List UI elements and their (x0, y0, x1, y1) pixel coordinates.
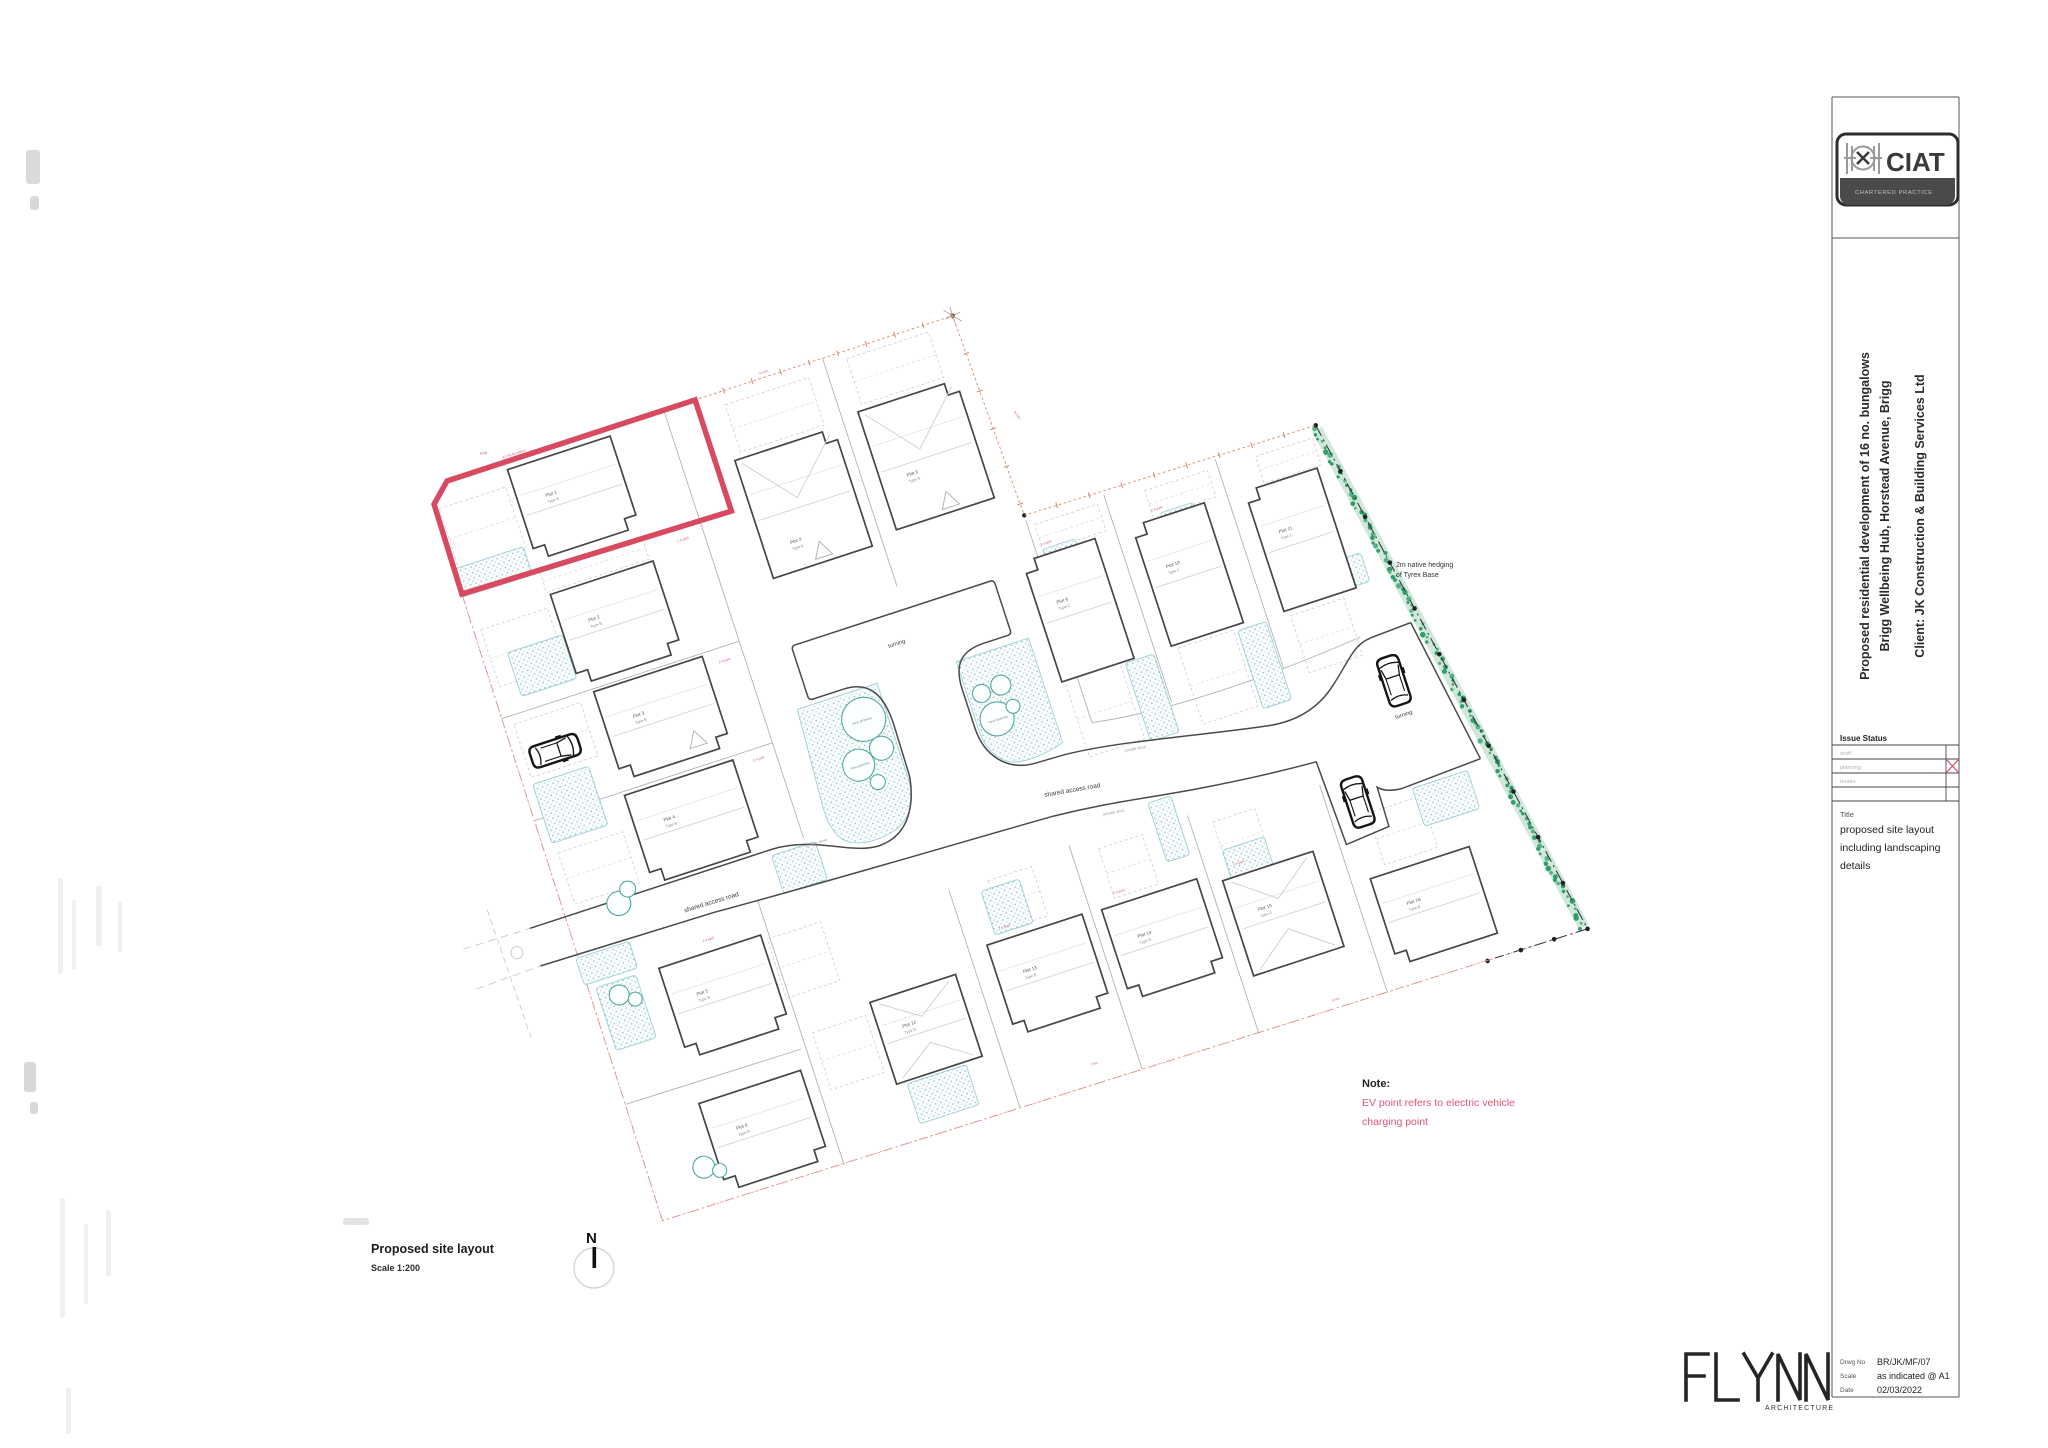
svg-text:draft: draft (1840, 751, 1851, 757)
svg-text:EV point refers to electric ve: EV point refers to electric vehicle (1362, 1097, 1515, 1109)
svg-text:proposed site layout: proposed site layout (1840, 824, 1934, 836)
svg-text:CIAT: CIAT (1886, 147, 1945, 177)
svg-text:Brigg Wellbeing Hub, Horstead: Brigg Wellbeing Hub, Horstead Avenue, Br… (1878, 380, 1892, 651)
svg-text:N: N (586, 1230, 597, 1247)
svg-text:CHARTERED PRACTICE: CHARTERED PRACTICE (1855, 190, 1933, 196)
svg-text:Drwg No: Drwg No (1840, 1359, 1866, 1366)
svg-text:Client: JK Construction & Bui: Client: JK Construction & Building Servi… (1913, 374, 1927, 657)
svg-text:BR/JK/MF/07: BR/JK/MF/07 (1877, 1357, 1931, 1367)
svg-text:Proposed site layout: Proposed site layout (371, 1242, 495, 1256)
svg-text:as indicated @ A1: as indicated @ A1 (1877, 1371, 1950, 1381)
svg-text:of Tyrex Base: of Tyrex Base (1396, 572, 1439, 579)
svg-text:Scale 1:200: Scale 1:200 (371, 1263, 420, 1273)
svg-text:planning: planning (1840, 765, 1861, 771)
svg-text:tender: tender (1840, 779, 1856, 785)
svg-text:including landscaping: including landscaping (1840, 842, 1941, 854)
svg-text:Proposed residential developme: Proposed residential development of 16 n… (1858, 352, 1872, 680)
svg-text:Scale: Scale (1840, 1373, 1857, 1380)
svg-text:charging point: charging point (1362, 1116, 1428, 1128)
svg-text:Title: Title (1840, 810, 1854, 819)
svg-text:Date: Date (1840, 1387, 1854, 1394)
svg-text:ARCHITECTURE: ARCHITECTURE (1765, 1405, 1834, 1412)
svg-text:Note:: Note: (1362, 1078, 1390, 1090)
svg-text:Issue Status: Issue Status (1840, 734, 1888, 743)
svg-text:02/03/2022: 02/03/2022 (1877, 1385, 1922, 1395)
svg-text:2m native hedging: 2m native hedging (1396, 562, 1453, 569)
svg-text:details: details (1840, 860, 1870, 872)
